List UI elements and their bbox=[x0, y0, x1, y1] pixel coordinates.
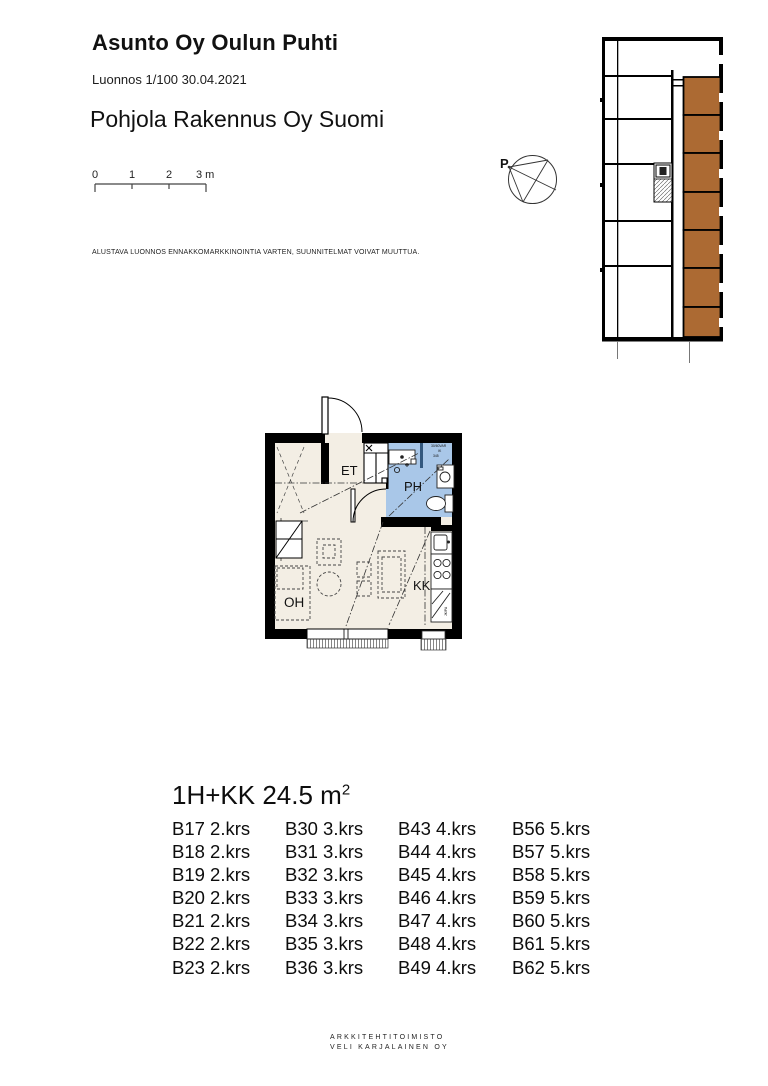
scale-label-3: 3 m bbox=[196, 169, 214, 181]
unit-cell: B45 4.krs bbox=[398, 863, 512, 886]
apartment-type-text: 1H+KK 24.5 m bbox=[172, 780, 342, 810]
unit-cell: B36 3.krs bbox=[285, 956, 398, 979]
highlighted-units bbox=[684, 77, 721, 337]
area-superscript: 2 bbox=[342, 781, 350, 798]
unit-cell: B20 2.krs bbox=[172, 886, 285, 909]
apartment-type-heading: 1H+KK 24.5 m2 bbox=[172, 780, 350, 811]
room-label-kk: KK bbox=[413, 578, 431, 593]
unit-cell: B32 3.krs bbox=[285, 863, 398, 886]
unit-cell: B49 4.krs bbox=[398, 956, 512, 979]
entrance-door bbox=[322, 397, 362, 434]
wardrobe bbox=[276, 521, 302, 558]
scale-label-0: 0 bbox=[92, 169, 98, 181]
page-title: Asunto Oy Oulun Puhti bbox=[92, 30, 338, 56]
unit-cell: B62 5.krs bbox=[512, 956, 622, 979]
drawing-subtitle: Luonnos 1/100 30.04.2021 bbox=[92, 72, 247, 87]
unit-cell: B30 3.krs bbox=[285, 817, 398, 840]
company-name: Pohjola Rakennus Oy Suomi bbox=[90, 106, 384, 133]
unit-cell: B17 2.krs bbox=[172, 817, 285, 840]
footer-line-2: VELI KARJALAINEN OY bbox=[330, 1043, 449, 1053]
north-compass-icon: P bbox=[495, 145, 570, 220]
footer-line-1: ARKKITEHTITOIMISTO bbox=[330, 1033, 449, 1043]
unit-cell: B57 5.krs bbox=[512, 840, 622, 863]
key-plan-ground-lines bbox=[618, 341, 690, 363]
key-plan bbox=[595, 0, 768, 365]
svg-text:345: 345 bbox=[433, 454, 439, 458]
stairwell-icon bbox=[654, 163, 672, 202]
unit-cell: B33 3.krs bbox=[285, 886, 398, 909]
scale-bar: 0 1 2 3 m bbox=[88, 164, 218, 194]
unit-cell: B61 5.krs bbox=[512, 932, 622, 955]
unit-cell: B22 2.krs bbox=[172, 932, 285, 955]
fridge-label: JK/PA bbox=[444, 606, 448, 616]
main-floor-plan: 30/60VAR IK 345 JK/PA bbox=[255, 390, 470, 660]
svg-text:30/60VAR: 30/60VAR bbox=[431, 444, 447, 448]
scale-label-2: 2 bbox=[166, 169, 172, 181]
unit-cell: B43 4.krs bbox=[398, 817, 512, 840]
unit-cell: B56 5.krs bbox=[512, 817, 622, 840]
north-label: P bbox=[500, 156, 509, 171]
scale-label-1: 1 bbox=[129, 169, 135, 181]
hall-cabinet bbox=[364, 443, 388, 483]
unit-cell: B23 2.krs bbox=[172, 956, 285, 979]
disclaimer-text: ALUSTAVA LUONNOS ENNAKKOMARKKINOINTIA VA… bbox=[92, 249, 419, 256]
unit-cell: B48 4.krs bbox=[398, 932, 512, 955]
unit-cell: B46 4.krs bbox=[398, 886, 512, 909]
unit-cell: B59 5.krs bbox=[512, 886, 622, 909]
unit-list: B17 2.krs B30 3.krs B43 4.krs B56 5.krs … bbox=[172, 817, 622, 979]
kitchen-fixtures bbox=[431, 532, 452, 622]
unit-cell: B21 2.krs bbox=[172, 909, 285, 932]
unit-cell: B18 2.krs bbox=[172, 840, 285, 863]
room-label-et: ET bbox=[341, 463, 358, 478]
unit-cell: B60 5.krs bbox=[512, 909, 622, 932]
unit-cell: B44 4.krs bbox=[398, 840, 512, 863]
unit-cell: B19 2.krs bbox=[172, 863, 285, 886]
unit-cell: B47 4.krs bbox=[398, 909, 512, 932]
scale-bar-line bbox=[95, 184, 206, 192]
windows bbox=[307, 629, 446, 650]
unit-cell: B58 5.krs bbox=[512, 863, 622, 886]
room-label-oh: OH bbox=[284, 595, 304, 610]
architect-firm-footer: ARKKITEHTITOIMISTO VELI KARJALAINEN OY bbox=[330, 1033, 449, 1052]
room-label-ph: PH bbox=[404, 479, 422, 494]
unit-cell: B35 3.krs bbox=[285, 932, 398, 955]
unit-cell: B34 3.krs bbox=[285, 909, 398, 932]
unit-cell: B31 3.krs bbox=[285, 840, 398, 863]
